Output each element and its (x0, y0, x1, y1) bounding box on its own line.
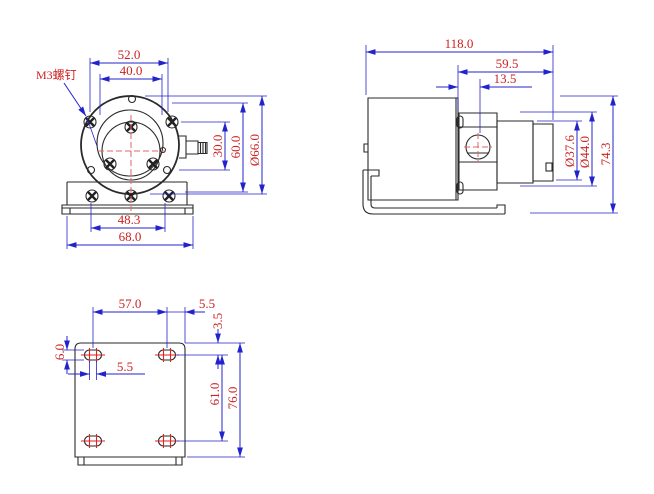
dim-side-head-length: 59.5 (496, 56, 519, 71)
port-centerlines (464, 133, 492, 162)
extension-lines (177, 343, 245, 355)
dim-bottom-pitch-x: 57.0 (119, 296, 142, 311)
dim-side-overall-length: 118.0 (445, 36, 474, 51)
dim-bottom-depth: 76.0 (225, 387, 240, 410)
dim-front-right-inner: 30.0 (210, 135, 225, 158)
dim-front-top-outer: 52.0 (118, 47, 141, 62)
dim-front-right-outer: Ø66.0 (247, 134, 262, 166)
bottom-view: 57.0 5.5 3.5 6.0 5.5 61.0 (52, 296, 245, 465)
flange-hole-right (164, 167, 171, 174)
motor-left-notch (364, 144, 368, 152)
bottom-view-dimensions: 57.0 5.5 3.5 6.0 5.5 61.0 (52, 296, 245, 457)
bracket-side-profile (363, 170, 505, 214)
cad-drawing: 52.0 40.0 M3螺钉 30.0 60.0 Ø66.0 48.3 (0, 0, 654, 494)
dim-bottom-right-margin: 5.5 (199, 296, 215, 311)
dim-bottom-pitch-y: 61.0 (207, 383, 222, 406)
screw-note: M3螺钉 (36, 68, 77, 82)
terminal-key (546, 163, 552, 171)
dim-side-overall-height: 74.3 (598, 143, 613, 166)
dim-bottom-top-margin: 3.5 (210, 313, 225, 329)
side-view-geometry (363, 98, 553, 214)
shaft-stub (179, 136, 207, 158)
dim-bottom-slot-width: 6.0 (52, 344, 67, 360)
dim-side-port-offset: 13.5 (494, 71, 517, 86)
outer-flange-circle (81, 96, 179, 194)
dim-side-shaft-dia: Ø37.6 (562, 134, 577, 167)
extension-lines (100, 74, 162, 115)
extension-lines (90, 361, 97, 380)
side-view-dimensions: 118.0 59.5 13.5 Ø37.6 Ø44.0 74.3 (366, 36, 618, 213)
extension-lines (93, 307, 167, 348)
base-plate-front-edge (78, 457, 182, 465)
pump-end-section (533, 124, 553, 181)
side-view: 118.0 59.5 13.5 Ø37.6 Ø44.0 74.3 (363, 36, 618, 214)
cad-drawing-canvas: 52.0 40.0 M3螺钉 30.0 60.0 Ø66.0 48.3 (0, 0, 654, 494)
extension-lines (366, 45, 553, 120)
motor-body (368, 98, 458, 200)
pump-body-section (497, 121, 533, 183)
dim-front-right-mid: 60.0 (228, 136, 243, 159)
front-view: 52.0 40.0 M3螺钉 30.0 60.0 Ø66.0 48.3 (36, 47, 267, 249)
front-view-dimensions: 52.0 40.0 M3螺钉 30.0 60.0 Ø66.0 48.3 (36, 47, 267, 249)
dim-front-bottom-outer: 68.0 (119, 229, 142, 244)
dim-side-body-dia: Ø44.0 (577, 136, 592, 168)
dim-bottom-slot-length: 5.5 (117, 359, 133, 374)
dim-front-bottom-inner: 48.3 (118, 212, 141, 227)
dim-front-top-inner: 40.0 (120, 63, 143, 78)
extension-lines (167, 307, 185, 343)
